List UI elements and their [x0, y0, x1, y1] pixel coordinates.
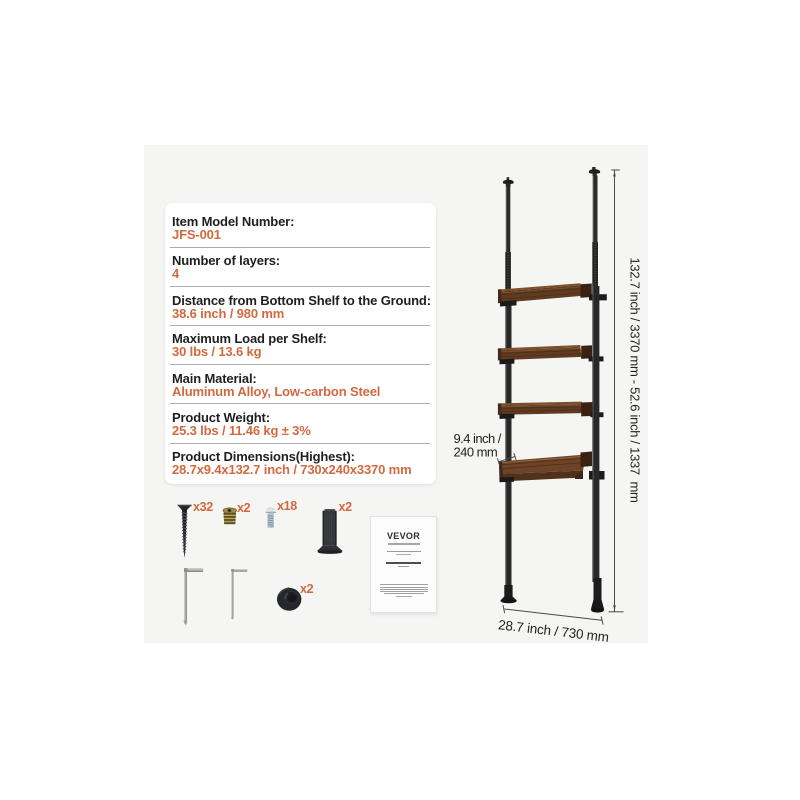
svg-text:240 mm: 240 mm	[454, 445, 498, 460]
svg-text:132.7 inch / 3370 mm - 52.6 in: 132.7 inch / 3370 mm - 52.6 inch / 1337 …	[628, 257, 643, 502]
svg-text:28.7 inch / 730 mm: 28.7 inch / 730 mm	[497, 617, 609, 645]
